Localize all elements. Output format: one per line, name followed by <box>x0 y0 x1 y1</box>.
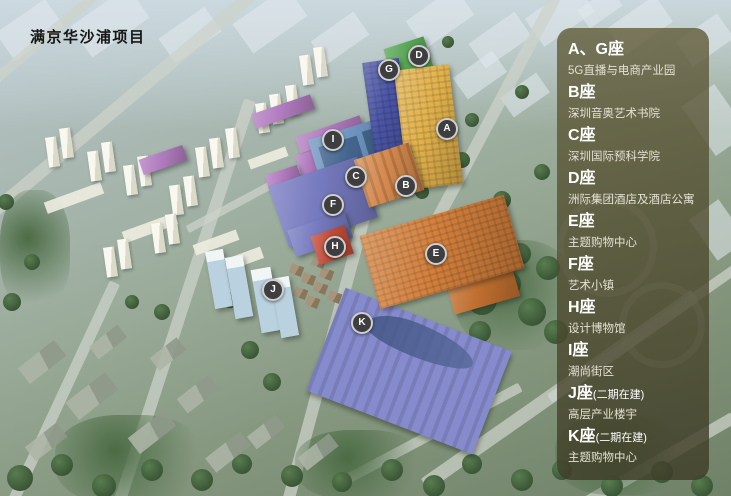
podium-strip <box>247 146 288 169</box>
tree <box>141 459 163 481</box>
legend-item-desc: 主题购物中心 <box>568 449 703 467</box>
legend-item-desc: 洲际集团酒店及酒店公寓 <box>568 191 703 209</box>
legend-item-label: C座 <box>568 127 596 144</box>
legend-item-heading: J座(二期在建) <box>568 383 703 406</box>
legend-item-heading: K座(二期在建) <box>568 426 703 449</box>
legend-item-heading: D座 <box>568 168 703 191</box>
marker-C: C <box>345 166 367 188</box>
tree <box>241 341 259 359</box>
legend-list: A、G座 5G直播与电商产业园 B座 深圳音奥艺术书院 C座 深圳国际预科学院 … <box>568 39 703 469</box>
low-rise-block <box>247 415 285 450</box>
legend-item-heading: A、G座 <box>568 39 703 62</box>
tree <box>154 304 170 320</box>
art-town-cube <box>318 267 334 281</box>
legend-item: C座 深圳国际预科学院 <box>568 125 703 168</box>
tree <box>263 373 281 391</box>
legend-item-label: A、G座 <box>568 41 624 58</box>
building-j-tower-2 <box>225 255 253 319</box>
legend-panel: A、G座 5G直播与电商产业园 B座 深圳音奥艺术书院 C座 深圳国际预科学院 … <box>557 28 709 480</box>
art-town-cube <box>312 281 328 295</box>
podium-strip <box>44 182 104 214</box>
tree <box>24 254 40 270</box>
legend-item-desc: 深圳国际预科学院 <box>568 148 703 166</box>
marker-E: E <box>425 243 447 265</box>
tree <box>125 295 139 309</box>
forest-patch <box>55 415 205 496</box>
tree <box>381 459 403 481</box>
legend-item-desc: 潮尚街区 <box>568 363 703 381</box>
legend-item-heading: I座 <box>568 340 703 363</box>
residential-tower <box>182 175 197 206</box>
tree <box>465 113 479 127</box>
low-rise-block <box>18 340 67 384</box>
legend-item-heading: E座 <box>568 211 703 234</box>
legend-item: E座 主题购物中心 <box>568 211 703 254</box>
residential-tower <box>122 164 137 195</box>
legend-item: B座 深圳音奥艺术书院 <box>568 82 703 125</box>
legend-item-label: H座 <box>568 299 596 316</box>
tree <box>423 475 445 496</box>
legend-item-heading: B座 <box>568 82 703 105</box>
legend-item-desc: 5G直播与电商产业园 <box>568 62 703 80</box>
tree <box>515 85 529 99</box>
marker-A: A <box>436 118 458 140</box>
art-town-cube <box>288 263 304 277</box>
legend-item-heading: H座 <box>568 297 703 320</box>
legend-item-desc: 艺术小镇 <box>568 277 703 295</box>
legend-item-desc: 深圳音奥艺术书院 <box>568 105 703 123</box>
legend-item: K座(二期在建) 主题购物中心 <box>568 426 703 469</box>
page-title: 满京华沙浦项目 <box>30 26 146 47</box>
marker-I: I <box>322 129 344 151</box>
marker-K: K <box>351 312 373 334</box>
art-town-cube <box>292 286 308 300</box>
legend-item: D座 洲际集团酒店及酒店公寓 <box>568 168 703 211</box>
tree <box>332 472 352 492</box>
legend-item-heading: C座 <box>568 125 703 148</box>
marker-B: B <box>395 175 417 197</box>
legend-item-label: K座 <box>568 428 596 445</box>
legend-item-label: B座 <box>568 84 596 101</box>
marker-H: H <box>324 236 346 258</box>
tree <box>281 465 303 487</box>
tree <box>7 465 33 491</box>
tree <box>3 293 21 311</box>
legend-item-desc: 主题购物中心 <box>568 234 703 252</box>
low-rise-block <box>177 375 220 414</box>
legend-item-label: E座 <box>568 213 595 230</box>
legend-item-label: J座 <box>568 385 593 402</box>
residential-tower <box>100 141 115 172</box>
legend-item-label: D座 <box>568 170 596 187</box>
legend-item: A、G座 5G直播与电商产业园 <box>568 39 703 82</box>
residential-tower <box>102 246 117 277</box>
tree <box>462 454 482 474</box>
residential-tower <box>194 146 209 177</box>
residential-tower <box>86 150 101 181</box>
marker-F: F <box>322 194 344 216</box>
legend-item-label: F座 <box>568 256 594 273</box>
building-i-strip-4 <box>139 145 188 175</box>
marker-J: J <box>262 279 284 301</box>
residential-tower <box>164 213 179 244</box>
legend-item: J座(二期在建) 高层产业楼宇 <box>568 383 703 426</box>
legend-item-desc: 设计博物馆 <box>568 320 703 338</box>
legend-item-suffix: (二期在建) <box>596 432 647 444</box>
residential-tower <box>168 184 183 215</box>
art-town-cube <box>300 272 316 286</box>
marker-G: G <box>378 59 400 81</box>
tree <box>442 36 454 48</box>
tree <box>92 474 116 496</box>
aerial-project-map: GDAICBFHEJK 满京华沙浦项目 A、G座 5G直播与电商产业园 B座 深… <box>0 0 731 496</box>
art-town-cube <box>304 295 320 309</box>
tree <box>51 454 73 476</box>
tree <box>191 469 213 491</box>
legend-item: F座 艺术小镇 <box>568 254 703 297</box>
legend-item: H座 设计博物馆 <box>568 297 703 340</box>
tree <box>534 164 550 180</box>
legend-item-suffix: (二期在建) <box>593 389 644 401</box>
legend-item-desc: 高层产业楼宇 <box>568 406 703 424</box>
tree <box>511 469 533 491</box>
legend-item-label: I座 <box>568 342 588 359</box>
legend-item-heading: F座 <box>568 254 703 277</box>
legend-item: I座 潮尚街区 <box>568 340 703 383</box>
residential-tower <box>208 137 223 168</box>
residential-tower <box>116 238 131 269</box>
marker-D: D <box>408 45 430 67</box>
tree <box>518 298 546 326</box>
